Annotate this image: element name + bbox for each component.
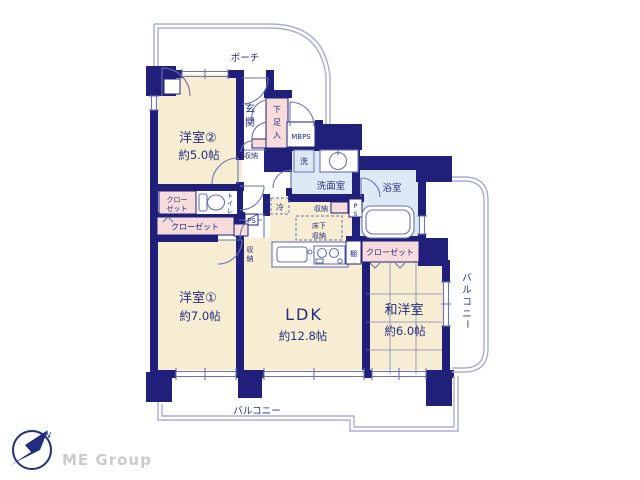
brand-logo-text: ME Group bbox=[62, 451, 152, 469]
compass-north-label: N bbox=[45, 431, 51, 440]
washroom-storage-box bbox=[331, 202, 348, 213]
ps-right-label-1: P bbox=[354, 202, 358, 210]
bathroom-label: 浴室 bbox=[382, 182, 401, 194]
washroom-label: 洗面室 bbox=[317, 180, 346, 192]
entrance-storage-box bbox=[252, 139, 266, 148]
floor-plan: ポーチ 洋室② 約5.0帖 洋室① 約7.0帖 LDK 約12.8帖 和洋室 約… bbox=[0, 0, 640, 480]
washroom-storage-label: 収納 bbox=[314, 204, 328, 213]
shelf-label: 棚 bbox=[350, 249, 357, 258]
hall-storage-label-1: 収 bbox=[247, 246, 254, 254]
western1-size: 約7.0帖 bbox=[179, 309, 220, 323]
ps-hall-label: PS bbox=[247, 217, 256, 225]
toilet-label-3: レ bbox=[227, 207, 234, 215]
shoe-cabinet-label-1: 下 bbox=[273, 105, 281, 114]
underfloor-label-2: 収納 bbox=[312, 231, 326, 240]
entrance-label-1: 玄 bbox=[245, 102, 255, 115]
closet-left-label: クローゼット bbox=[171, 222, 219, 232]
balcony-side-label-1: バ bbox=[462, 273, 472, 284]
compass: N bbox=[9, 430, 51, 469]
entrance-label-2: 関 bbox=[245, 117, 255, 129]
western2-pillar bbox=[164, 79, 180, 94]
western1-name: 洋室① bbox=[179, 290, 217, 306]
shoe-cabinet-label-2: 足 bbox=[273, 118, 281, 127]
room-western1-floor bbox=[158, 240, 238, 372]
underfloor-label-1: 床下 bbox=[312, 221, 326, 230]
closet-east-label: クローゼット bbox=[366, 247, 414, 257]
door-arc-washroom bbox=[273, 170, 291, 188]
japanese-size: 約6.0帖 bbox=[384, 324, 425, 338]
room-japanese-floor bbox=[364, 260, 444, 376]
vanity-counter bbox=[320, 150, 358, 172]
balcony-side-label-3: コ bbox=[462, 297, 472, 308]
japanese-name: 和洋室 bbox=[384, 302, 423, 318]
balcony-bottom-label: バルコニー bbox=[233, 406, 280, 417]
room-ldk-floor bbox=[244, 198, 364, 374]
closet-upper-label-2: ゼット bbox=[167, 204, 188, 213]
shoe-cabinet-label-3: 入 bbox=[273, 131, 281, 140]
western2-name: 洋室② bbox=[179, 130, 217, 146]
porch-label: ポーチ bbox=[231, 53, 260, 64]
balcony-bottom-outline bbox=[158, 376, 458, 431]
ps-right-label-2: S bbox=[353, 210, 357, 218]
hall-storage-label-2: 納 bbox=[247, 254, 254, 263]
balcony-side-label-2: ル bbox=[462, 285, 472, 296]
western2-size: 約5.0帖 bbox=[178, 148, 219, 162]
toilet-tank bbox=[199, 194, 207, 211]
ldk-size: 約12.8帖 bbox=[279, 329, 328, 343]
toilet-bowl bbox=[208, 195, 225, 210]
closet-upper-label-1: クロー bbox=[167, 196, 188, 204]
balcony-side-label-5: ー bbox=[461, 319, 472, 329]
ldk-name: LDK bbox=[285, 305, 323, 324]
entrance-storage-label: 収納 bbox=[244, 151, 258, 160]
meter-box-label: MBPS bbox=[291, 133, 311, 141]
fridge-label: 冷 bbox=[276, 202, 284, 212]
washer-label: 洗 bbox=[300, 156, 308, 166]
floor-plan-canvas: ポーチ 洋室② 約5.0帖 洋室① 約7.0帖 LDK 約12.8帖 和洋室 約… bbox=[0, 0, 640, 480]
